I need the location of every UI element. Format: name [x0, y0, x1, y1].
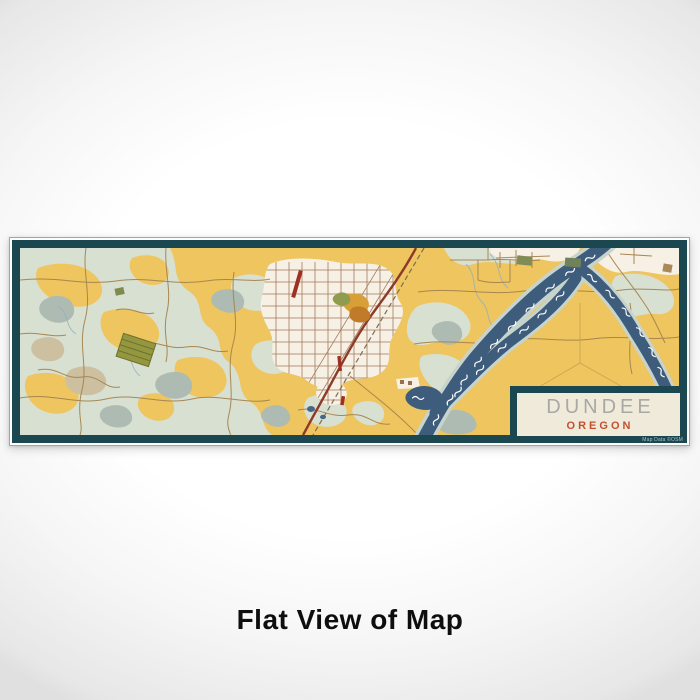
map-title-panel: DUNDEE OREGON [517, 393, 680, 436]
caption: Flat View of Map [0, 604, 700, 636]
map-city-label: DUNDEE [542, 397, 654, 418]
map-print: DUNDEE OREGON Map Data ©OSM [9, 237, 690, 446]
product-photo-background: DUNDEE OREGON Map Data ©OSM Flat View of… [0, 0, 700, 700]
map-state-label: OREGON [564, 421, 634, 433]
map-frame-border: DUNDEE OREGON Map Data ©OSM [12, 240, 687, 443]
map-attribution: Map Data ©OSM [642, 437, 683, 443]
map-title-block: DUNDEE OREGON Map Data ©OSM [510, 386, 687, 443]
